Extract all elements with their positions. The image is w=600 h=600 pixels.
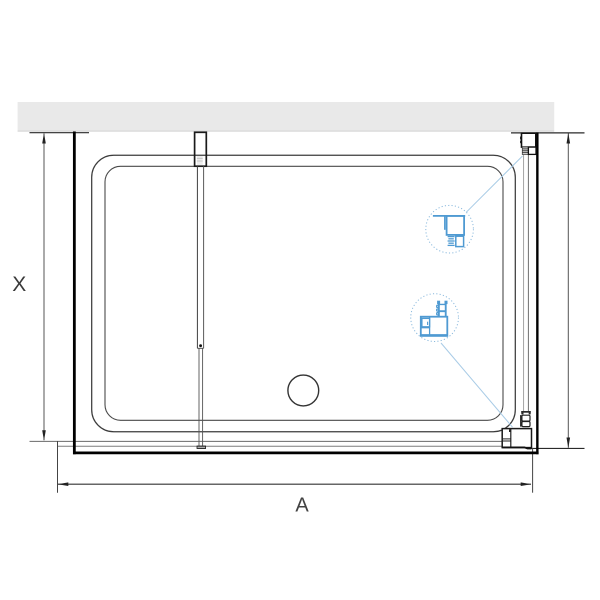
- svg-text:X: X: [12, 273, 26, 296]
- svg-text:A: A: [295, 495, 309, 517]
